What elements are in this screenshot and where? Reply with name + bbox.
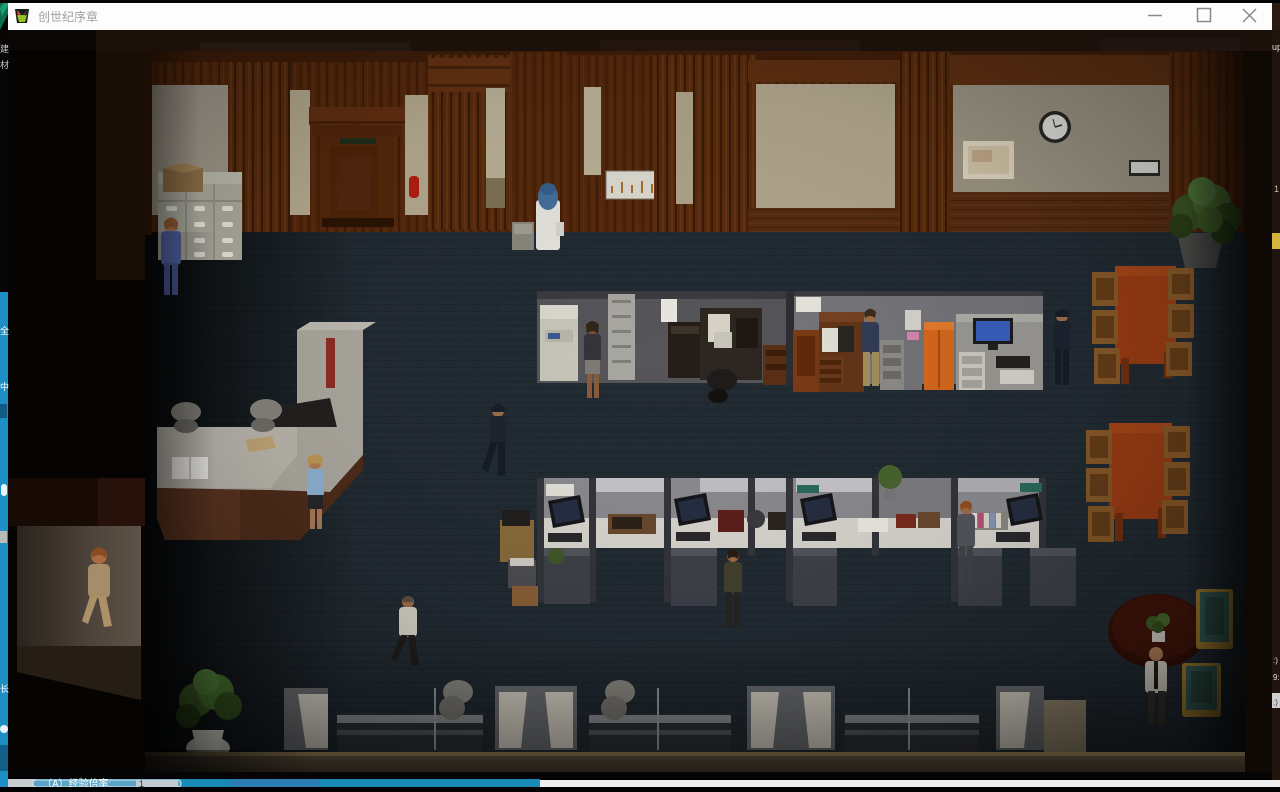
svg-text:全: 全 xyxy=(0,325,9,336)
svg-text:（A）经验倍率:: （A）经验倍率: xyxy=(42,777,111,787)
svg-text:1: 1 xyxy=(139,779,144,787)
svg-text:建: 建 xyxy=(0,43,9,54)
svg-text:9:: 9: xyxy=(1273,673,1280,682)
svg-text:材: 材 xyxy=(0,59,9,70)
svg-text:1: 1 xyxy=(1274,184,1279,194)
svg-text:中: 中 xyxy=(0,381,9,392)
svg-text::): :) xyxy=(1273,698,1278,707)
svg-text:up: up xyxy=(1272,42,1280,52)
svg-text::): :) xyxy=(1273,656,1278,665)
svg-text:创世纪序章: 创世纪序章 xyxy=(38,9,98,24)
svg-text:长: 长 xyxy=(0,683,9,694)
